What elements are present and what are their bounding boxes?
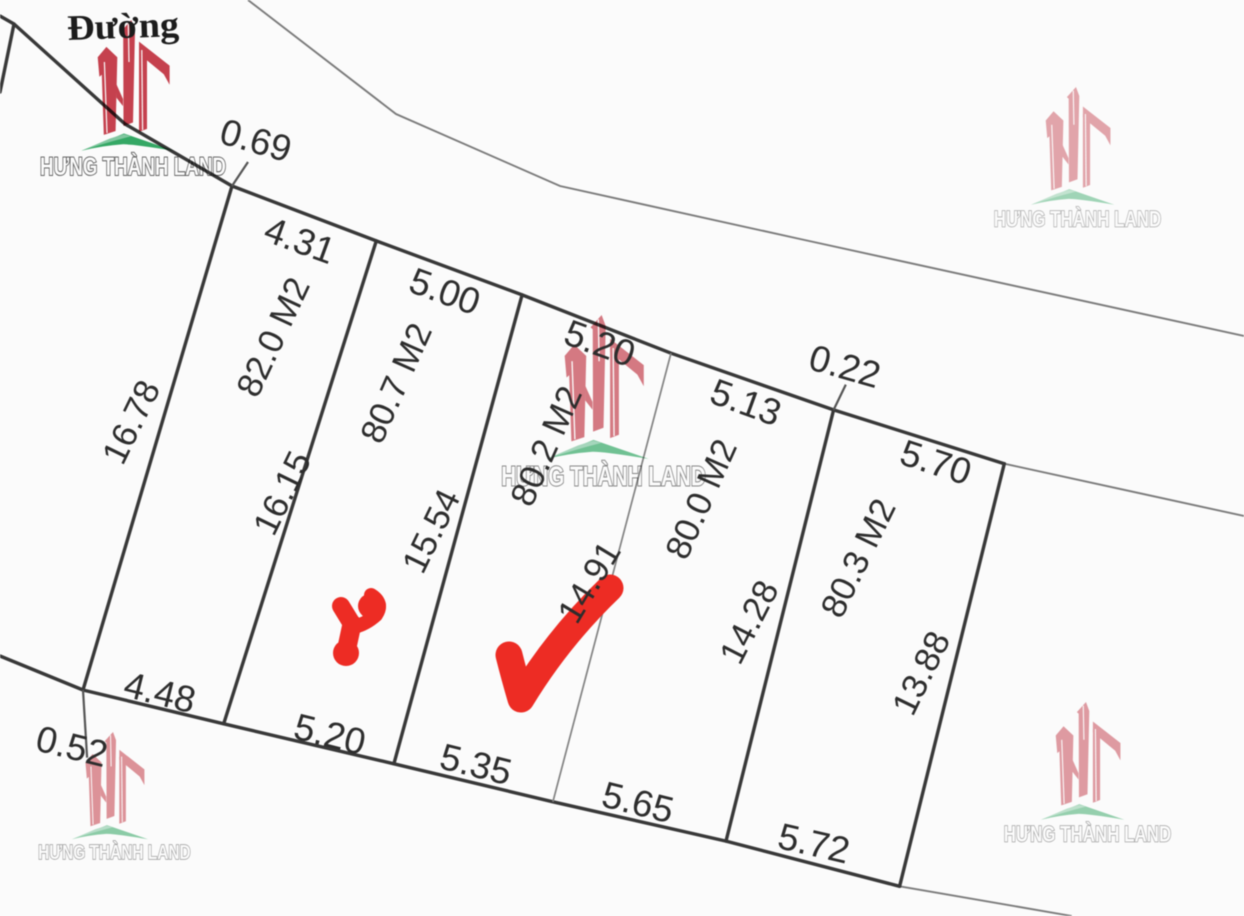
svg-text:Đường: Đường [66, 4, 179, 48]
